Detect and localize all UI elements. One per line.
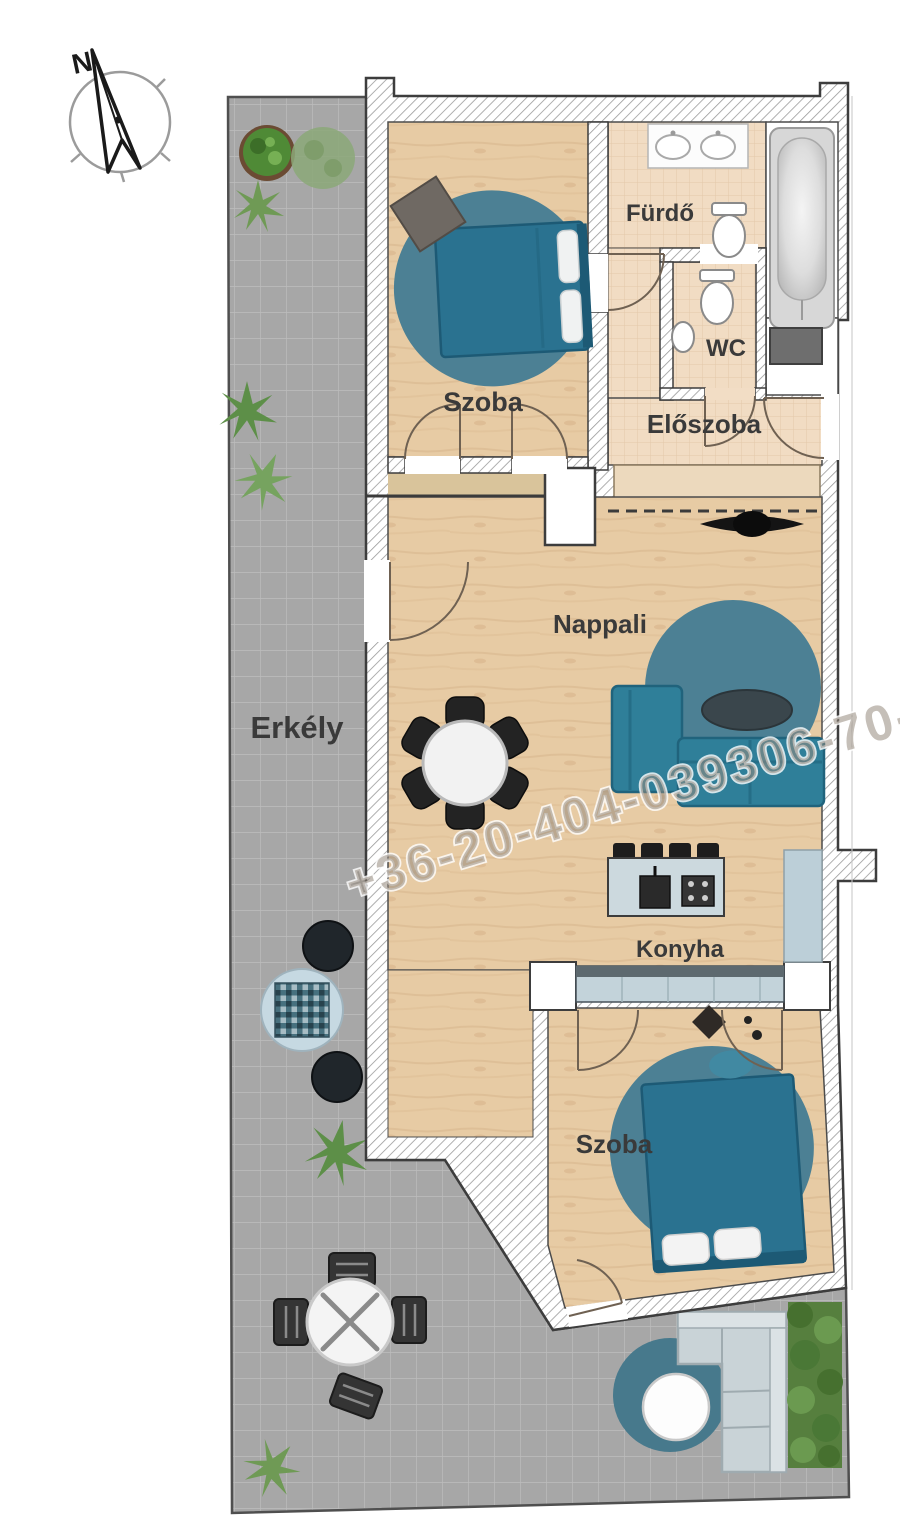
- cooktop: [682, 876, 714, 906]
- outdoor-chair: [274, 1299, 308, 1345]
- door-opening: [512, 456, 567, 474]
- floor-plan-page: N Erkély: [0, 0, 900, 1528]
- floor-plan: N Erkély: [0, 0, 900, 1528]
- sink: [701, 135, 735, 159]
- wall: [460, 457, 512, 473]
- wall: [660, 262, 673, 400]
- toilet: [700, 270, 734, 324]
- balcony-door-opening: [364, 560, 390, 642]
- room-label-nappali: Nappali: [553, 609, 647, 639]
- room-label-szoba-top: Szoba: [443, 387, 523, 417]
- door-post: [530, 962, 576, 1010]
- dining-table: [423, 721, 507, 805]
- pillow: [714, 1227, 762, 1260]
- pillow: [662, 1232, 710, 1265]
- wall: [588, 122, 608, 254]
- room-label-szoba-bottom: Szoba: [576, 1129, 653, 1159]
- outdoor-chair: [392, 1297, 426, 1343]
- hedge-plant: [787, 1302, 843, 1468]
- pillar: [545, 468, 595, 545]
- room-label-furdo: Fürdő: [626, 200, 694, 227]
- terrace-side-table: [643, 1374, 709, 1440]
- wc-sink: [672, 322, 694, 352]
- pillow: [557, 230, 580, 283]
- nappali-alcove-floor: [388, 970, 533, 1137]
- pillow: [560, 290, 583, 343]
- corridor-floor: [608, 248, 660, 398]
- balcony-chair: [312, 1052, 362, 1102]
- room-label-eloszoba: Előszoba: [647, 409, 762, 439]
- washing-machine: [770, 328, 822, 364]
- counter-edge: [576, 966, 784, 977]
- door-opening: [405, 456, 460, 474]
- apartment: Szoba Fürdő WC Előszoba Nappali Konyha S…: [364, 78, 876, 1330]
- threshold-strip: [388, 473, 545, 497]
- balcony-chair: [303, 921, 353, 971]
- shrub-plant: [291, 127, 355, 189]
- door-opening: [705, 388, 755, 400]
- kitchen-sink: [640, 876, 670, 908]
- sink: [656, 135, 690, 159]
- door-opening: [588, 254, 608, 312]
- room-label-erkely: Erkély: [250, 710, 344, 745]
- toilet: [712, 203, 746, 257]
- room-label-konyha: Konyha: [636, 936, 725, 963]
- door-post: [784, 962, 830, 1010]
- potted-plant: [239, 125, 295, 181]
- wall: [756, 248, 766, 395]
- room-label-wc: WC: [706, 335, 746, 362]
- kitchen-counter-right: [784, 850, 822, 962]
- entrance-door-opening: [821, 394, 839, 460]
- wall: [388, 457, 405, 473]
- wall: [660, 388, 705, 400]
